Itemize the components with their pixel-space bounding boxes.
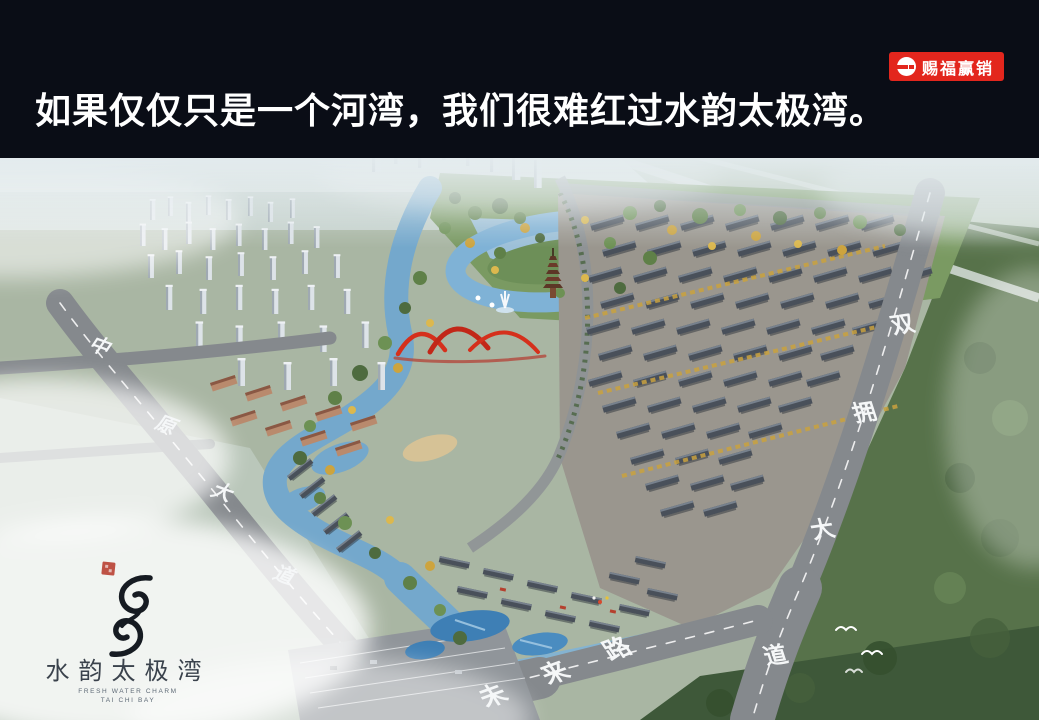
seal-stamp-icon xyxy=(101,561,115,575)
brand-name: 赐福赢销 xyxy=(922,55,994,79)
brand-logo: 赐福赢销 xyxy=(889,52,1004,81)
slide: 如果仅仅只是一个河湾，我们很难红过水韵太极湾。 赐福赢销 xyxy=(0,0,1039,720)
aerial-rendering: 中 原 大 道 双 拥 大 道 未 来 路 xyxy=(0,158,1039,720)
watermark-title: 水韵太极湾 xyxy=(46,658,211,685)
slide-title: 如果仅仅只是一个河湾，我们很难红过水韵太极湾。 xyxy=(35,82,886,134)
watermark-subtitle-2: TAI CHI BAY xyxy=(101,697,156,704)
cifu-circle-icon xyxy=(897,57,916,76)
headline-bar: 如果仅仅只是一个河湾，我们很难红过水韵太极湾。 赐福赢销 xyxy=(0,0,1039,158)
watermark-subtitle-1: FRESH WATER CHARM xyxy=(78,688,177,695)
